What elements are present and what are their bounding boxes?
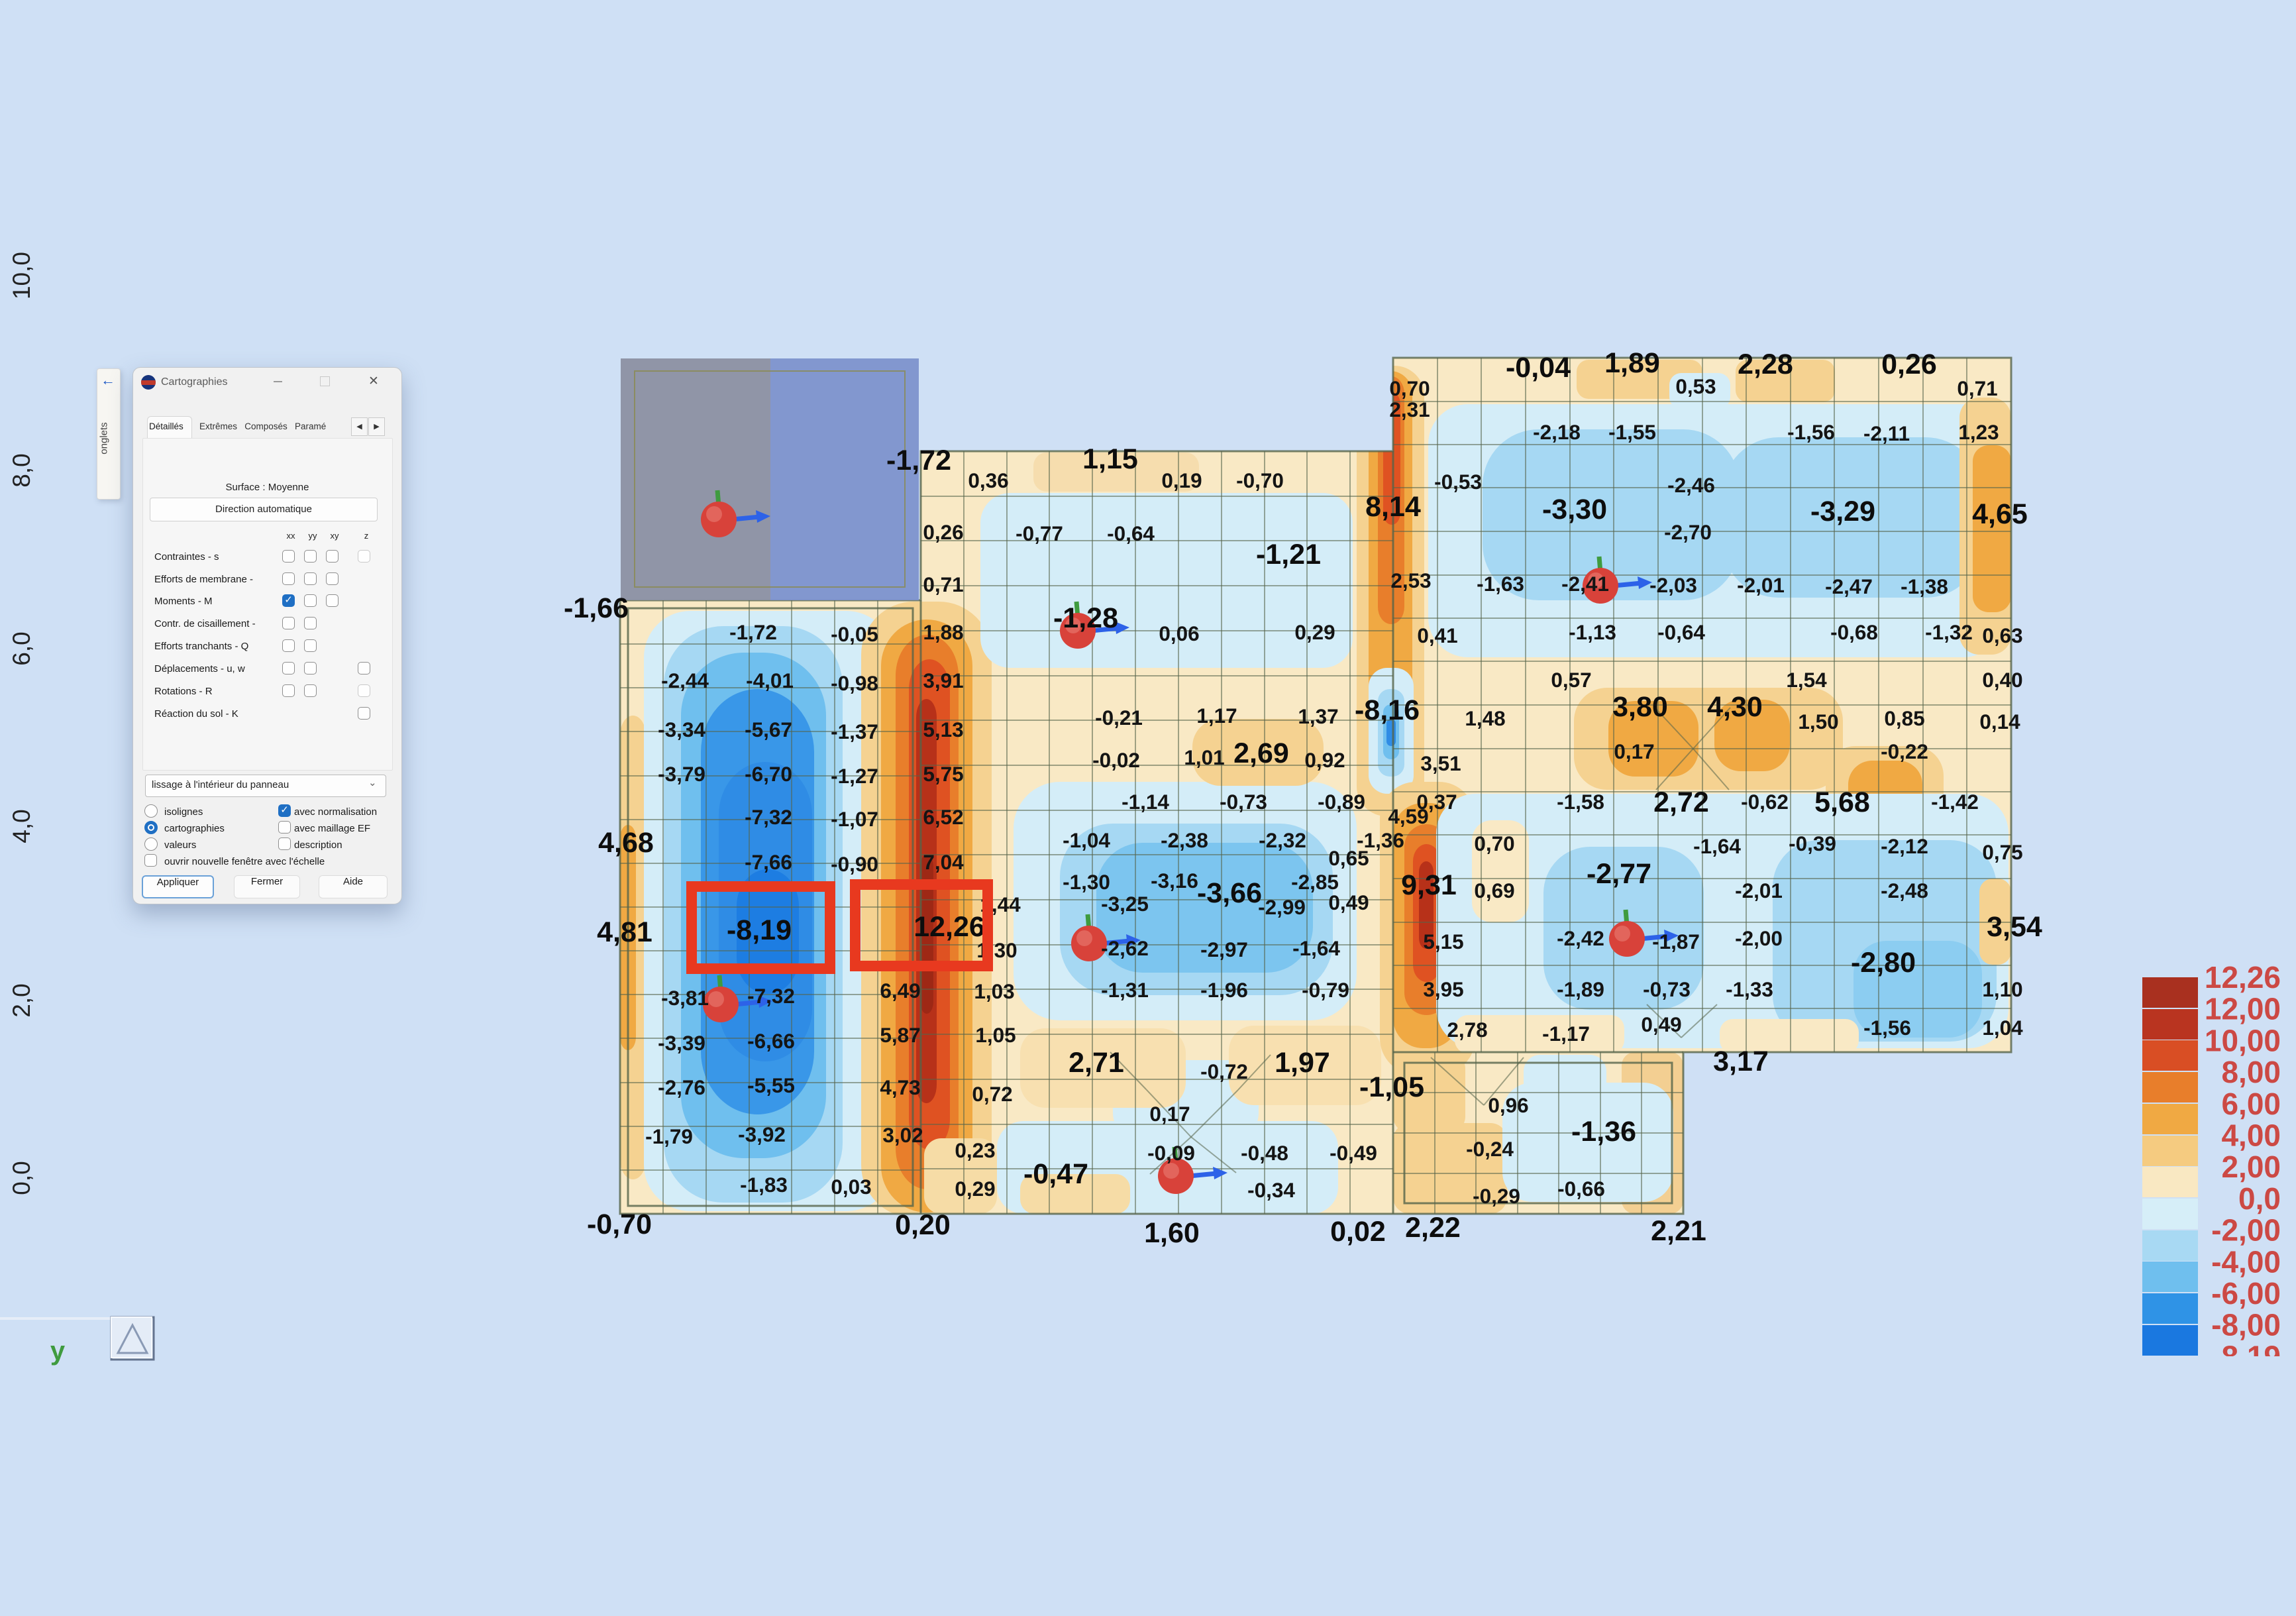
svg-text:0,19: 0,19 [1161,468,1202,492]
svg-text:-6,00: -6,00 [2211,1276,2281,1311]
svg-text:4,68: 4,68 [598,827,654,859]
svg-text:5,13: 5,13 [923,718,963,741]
svg-text:-2,01: -2,01 [1737,573,1785,597]
svg-text:4,30: 4,30 [1707,691,1763,723]
svg-text:7,04: 7,04 [923,850,964,874]
svg-text:-0,98: -0,98 [831,671,878,695]
svg-text:-0,22: -0,22 [1881,739,1928,763]
svg-text:0,26: 0,26 [923,520,963,544]
svg-text:-1,17: -1,17 [1542,1022,1590,1046]
svg-text:-0,53: -0,53 [1434,470,1482,494]
svg-text:6,00: 6,00 [2221,1087,2281,1121]
svg-text:-1,28: -1,28 [1053,602,1118,634]
svg-text:-2,32: -2,32 [1259,828,1306,852]
svg-text:6,0: 6,0 [8,631,35,665]
svg-text:2,31: 2,31 [1389,398,1430,421]
svg-text:-0,70: -0,70 [1236,468,1284,492]
svg-text:-1,33: -1,33 [1726,977,1773,1001]
svg-text:1,54: 1,54 [1786,668,1827,692]
svg-text:-0,49: -0,49 [1330,1141,1377,1165]
svg-text:0,65: 0,65 [1328,846,1369,870]
svg-text:-8,00: -8,00 [2211,1308,2281,1342]
svg-text:-3,79: -3,79 [658,762,705,786]
svg-text:-0,73: -0,73 [1220,790,1267,814]
svg-text:-1,42: -1,42 [1931,790,1979,814]
svg-text:9,31: 9,31 [1401,869,1457,901]
svg-text:-0,34: -0,34 [1247,1178,1295,1202]
svg-text:-0,64: -0,64 [1657,620,1705,644]
svg-text:1,88: 1,88 [923,620,963,644]
svg-text:1,04: 1,04 [1982,1016,2023,1040]
svg-text:-2,44: -2,44 [661,669,709,692]
svg-text:-0,39: -0,39 [1789,832,1836,855]
svg-text:-5,67: -5,67 [745,718,792,741]
svg-text:-7,66: -7,66 [745,850,792,874]
svg-text:4,0: 4,0 [8,809,35,843]
svg-text:6,49: 6,49 [880,979,920,1002]
svg-text:0,49: 0,49 [1641,1012,1681,1036]
svg-text:-1,89: -1,89 [1557,977,1604,1001]
svg-text:-0,48: -0,48 [1241,1141,1288,1165]
svg-text:1,15: 1,15 [1082,443,1138,475]
svg-text:-1,79: -1,79 [645,1124,693,1148]
svg-text:3,54: 3,54 [1987,911,2042,943]
svg-text:0,36: 0,36 [968,468,1008,492]
svg-text:2,69: 2,69 [1233,737,1289,769]
svg-text:0,29: 0,29 [955,1177,995,1201]
svg-text:0,37: 0,37 [1416,790,1457,814]
svg-text:0,20: 0,20 [895,1209,951,1241]
svg-text:y: y [50,1336,66,1366]
svg-text:0,03: 0,03 [831,1175,871,1199]
svg-text:2,22: 2,22 [1405,1212,1461,1244]
svg-text:-0,05: -0,05 [831,622,878,646]
svg-text:0,71: 0,71 [923,572,963,596]
svg-text:0,71: 0,71 [1957,376,1997,400]
svg-text:-0,72: -0,72 [1200,1059,1248,1083]
svg-text:10,00: 10,00 [2205,1023,2281,1057]
svg-text:0,75: 0,75 [1982,840,2022,864]
svg-text:-2,47: -2,47 [1825,574,1873,598]
svg-text:0,69: 0,69 [1474,879,1514,902]
svg-text:-2,62: -2,62 [1101,936,1149,960]
svg-text:2,78: 2,78 [1447,1018,1487,1042]
svg-text:3,51: 3,51 [1420,751,1461,775]
svg-text:0,72: 0,72 [972,1082,1012,1106]
svg-text:-2,77: -2,77 [1587,858,1651,890]
svg-text:10,0: 10,0 [8,252,35,299]
svg-text:-3,81: -3,81 [661,986,709,1010]
svg-text:-1,63: -1,63 [1477,572,1524,596]
svg-text:0,17: 0,17 [1149,1102,1190,1126]
svg-text:0,40: 0,40 [1982,668,2022,692]
svg-text:-4,00: -4,00 [2211,1244,2281,1279]
svg-text:0,23: 0,23 [955,1138,995,1162]
svg-text:-2,12: -2,12 [1881,834,1928,858]
svg-text:-1,72: -1,72 [886,445,951,476]
svg-text:-1,58: -1,58 [1557,790,1604,814]
svg-text:0,92: 0,92 [1304,748,1345,772]
svg-text:6,52: 6,52 [923,805,963,829]
svg-text:1,50: 1,50 [1798,710,1838,733]
svg-text:1,10: 1,10 [1982,977,2022,1001]
svg-text:0,26: 0,26 [1881,349,1937,380]
svg-text:-0,73: -0,73 [1643,977,1691,1001]
svg-text:-1,14: -1,14 [1122,790,1169,814]
svg-text:-1,55: -1,55 [1608,420,1656,444]
svg-text:-1,38: -1,38 [1901,574,1948,598]
svg-text:-1,96: -1,96 [1200,978,1248,1002]
svg-text:1,37: 1,37 [1298,704,1338,728]
svg-text:-0,02: -0,02 [1092,748,1140,772]
svg-text:-1,21: -1,21 [1256,539,1321,570]
svg-text:-6,66: -6,66 [747,1029,795,1053]
svg-text:-1,05: -1,05 [1359,1071,1424,1103]
svg-text:-0,24: -0,24 [1466,1137,1514,1161]
svg-text:-0,70: -0,70 [587,1209,652,1240]
svg-text:-0,68: -0,68 [1830,620,1878,644]
svg-text:5,68: 5,68 [1814,786,1870,818]
svg-text:-0,90: -0,90 [831,852,878,876]
svg-text:4,73: 4,73 [880,1075,920,1099]
svg-text:-0,66: -0,66 [1557,1177,1605,1201]
svg-text:-1,30: -1,30 [1063,870,1110,894]
svg-text:5,15: 5,15 [1423,930,1463,953]
svg-text:-3,29: -3,29 [1810,496,1875,527]
svg-text:0,85: 0,85 [1884,706,1924,730]
svg-text:12,26: 12,26 [913,911,985,943]
svg-text:-5,55: -5,55 [747,1073,795,1097]
svg-text:-1,07: -1,07 [831,807,878,831]
svg-text:8,00: 8,00 [2221,1055,2281,1089]
svg-text:-0,62: -0,62 [1741,790,1789,814]
svg-text:-2,42: -2,42 [1557,926,1604,950]
svg-text:-0,21: -0,21 [1095,706,1143,729]
svg-text:-2,38: -2,38 [1161,828,1208,852]
svg-text:5,87: 5,87 [880,1023,920,1047]
svg-text:0,63: 0,63 [1982,623,2022,647]
svg-text:-1,04: -1,04 [1063,828,1110,852]
svg-text:2,0: 2,0 [8,983,35,1017]
svg-text:-7,32: -7,32 [747,984,795,1008]
svg-text:-3,25: -3,25 [1101,892,1149,916]
svg-text:5,75: 5,75 [923,762,963,786]
svg-text:0,29: 0,29 [1294,620,1335,644]
svg-text:-2,03: -2,03 [1649,573,1697,597]
svg-text:-2,80: -2,80 [1851,947,1916,979]
svg-text:-0,79: -0,79 [1302,978,1349,1002]
svg-text:1,97: 1,97 [1275,1047,1330,1079]
svg-text:-1,66: -1,66 [564,592,629,624]
svg-text:-2,00: -2,00 [2211,1213,2281,1248]
svg-text:1,48: 1,48 [1465,706,1505,730]
svg-text:-3,39: -3,39 [658,1031,705,1055]
svg-text:-0,09: -0,09 [1147,1141,1195,1165]
svg-text:-2,76: -2,76 [658,1075,705,1099]
svg-text:3,80: 3,80 [1612,691,1668,723]
svg-text:8,14: 8,14 [1365,491,1421,523]
svg-text:2,72: 2,72 [1653,786,1709,818]
svg-text:-7,32: -7,32 [745,805,792,829]
svg-text:4,00: 4,00 [2221,1118,2281,1153]
svg-text:-2,97: -2,97 [1200,938,1248,961]
svg-text:1,17: 1,17 [1196,704,1237,727]
svg-text:-3,16: -3,16 [1151,869,1198,892]
svg-text:4,65: 4,65 [1972,498,2028,530]
svg-text:-1,56: -1,56 [1787,420,1835,444]
svg-text:-0,29: -0,29 [1473,1184,1520,1208]
svg-text:-1,36: -1,36 [1571,1116,1636,1148]
svg-text:12,26: 12,26 [2205,960,2281,995]
svg-text:3,02: 3,02 [882,1123,923,1147]
svg-text:-2,00: -2,00 [1735,926,1783,950]
svg-text:0,14: 0,14 [1979,710,2020,733]
svg-text:-1,64: -1,64 [1693,834,1741,858]
svg-text:1,89: 1,89 [1604,347,1660,379]
svg-text:-1,27: -1,27 [831,764,878,788]
svg-text:0,41: 0,41 [1417,623,1457,647]
svg-text:3,91: 3,91 [923,669,963,692]
svg-text:-8,16: -8,16 [1355,694,1420,726]
svg-text:-0,47: -0,47 [1023,1158,1088,1190]
svg-text:-1,37: -1,37 [831,720,878,743]
svg-text:-3,30: -3,30 [1542,494,1607,525]
svg-text:-4,01: -4,01 [746,669,794,692]
svg-text:-2,41: -2,41 [1561,572,1609,596]
svg-text:-2,99: -2,99 [1258,895,1306,919]
svg-text:-0,64: -0,64 [1107,521,1155,545]
svg-text:-1,56: -1,56 [1863,1016,1911,1040]
svg-text:0,0: 0,0 [2238,1181,2281,1216]
svg-text:4,81: 4,81 [597,916,652,948]
svg-text:-2,48: -2,48 [1881,879,1928,902]
svg-text:0,70: 0,70 [1389,376,1430,400]
svg-text:-8,19: -8,19 [727,914,792,946]
svg-text:-3,92: -3,92 [738,1122,786,1146]
svg-text:-2,18: -2,18 [1533,420,1581,444]
svg-text:1,03: 1,03 [974,979,1014,1003]
svg-text:-6,70: -6,70 [745,762,792,786]
svg-text:-2,70: -2,70 [1664,520,1712,544]
svg-text:3,17: 3,17 [1713,1046,1769,1077]
svg-text:0,57: 0,57 [1551,668,1591,692]
svg-text:0,49: 0,49 [1328,890,1369,914]
svg-text:2,00: 2,00 [2221,1150,2281,1184]
svg-text:0,0: 0,0 [8,1161,35,1195]
svg-text:-1,32: -1,32 [1925,620,1973,644]
svg-text:1,60: 1,60 [1144,1217,1200,1249]
svg-text:-3,34: -3,34 [658,718,705,741]
svg-text:-1,87: -1,87 [1652,930,1700,953]
svg-text:2,28: 2,28 [1738,349,1793,380]
svg-text:8,0: 8,0 [8,453,35,487]
svg-text:-0,77: -0,77 [1016,521,1063,545]
svg-text:1,05: 1,05 [975,1023,1016,1047]
svg-text:-1,13: -1,13 [1569,620,1616,644]
svg-text:1,23: 1,23 [1958,420,1999,444]
svg-text:0,70: 0,70 [1474,832,1514,855]
svg-text:-1,64: -1,64 [1292,936,1340,960]
svg-text:1,01: 1,01 [1184,745,1224,769]
svg-text:-2,01: -2,01 [1735,879,1783,902]
svg-text:0,06: 0,06 [1159,621,1199,645]
svg-text:2,71: 2,71 [1069,1047,1124,1079]
svg-text:-1,31: -1,31 [1101,978,1149,1002]
svg-text:2,53: 2,53 [1390,568,1431,592]
svg-text:0,17: 0,17 [1614,739,1654,763]
svg-text:-2,46: -2,46 [1667,473,1715,497]
svg-text:3,95: 3,95 [1423,977,1463,1001]
svg-text:-3,66: -3,66 [1197,877,1262,909]
svg-text:-1,83: -1,83 [740,1173,788,1197]
svg-text:0,53: 0,53 [1675,374,1716,398]
svg-text:-1,72: -1,72 [729,620,777,644]
svg-text:-0,04: -0,04 [1506,352,1571,384]
svg-text:0,02: 0,02 [1330,1216,1386,1248]
svg-text:0,96: 0,96 [1488,1093,1528,1117]
svg-text:2,21: 2,21 [1651,1215,1706,1247]
svg-text:-2,11: -2,11 [1863,421,1910,445]
svg-text:-8,19: -8,19 [2211,1339,2281,1374]
svg-text:-0,89: -0,89 [1318,790,1365,814]
svg-text:12,00: 12,00 [2205,992,2281,1026]
